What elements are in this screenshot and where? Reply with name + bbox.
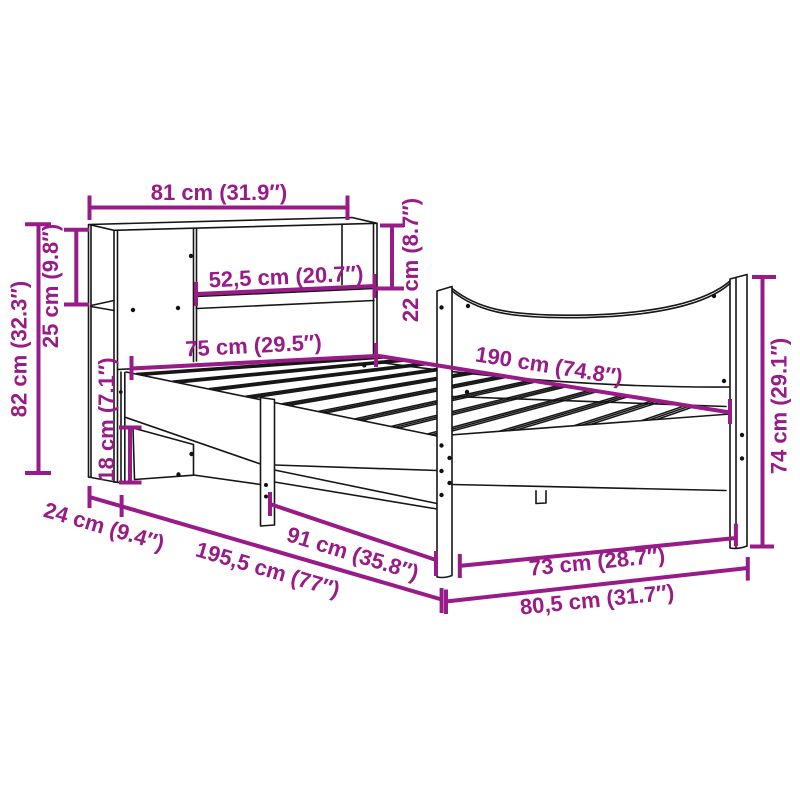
svg-text:74 cm (29.1″): 74 cm (29.1″) [767,338,792,475]
svg-text:18 cm (7.1″): 18 cm (7.1″) [94,357,119,481]
svg-text:22 cm (8.7″): 22 cm (8.7″) [398,198,423,322]
svg-text:25 cm (9.8″): 25 cm (9.8″) [38,224,63,348]
svg-text:81 cm (31.9″): 81 cm (31.9″) [151,180,288,205]
svg-text:82 cm (32.3″): 82 cm (32.3″) [7,281,32,418]
